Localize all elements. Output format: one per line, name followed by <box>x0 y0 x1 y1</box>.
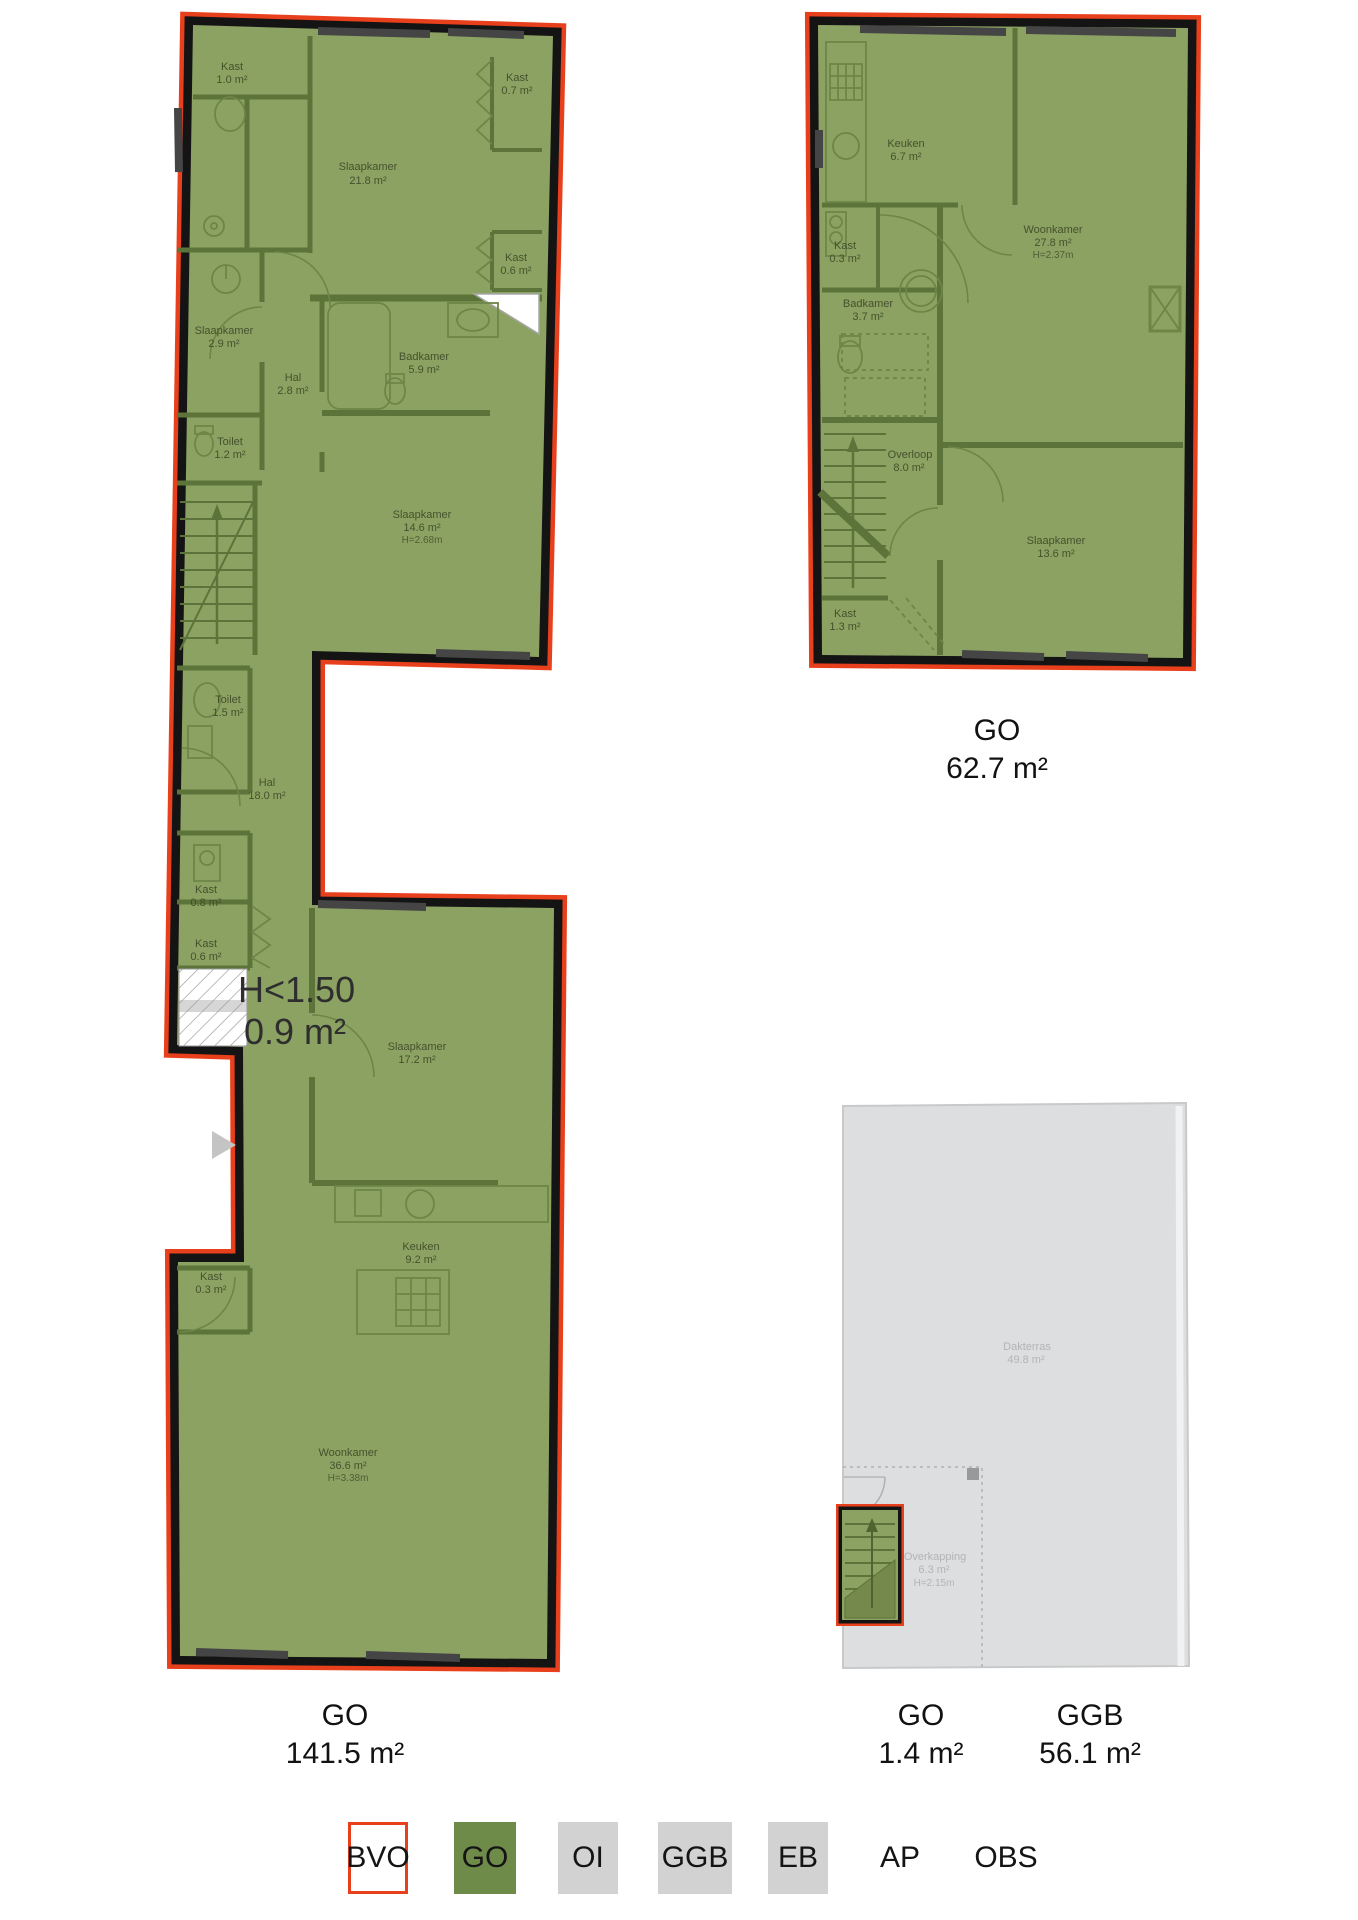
room-label: Badkamer <box>843 298 893 310</box>
room-label: Keuken <box>887 138 924 150</box>
room-area: 5.9 m² <box>408 364 440 376</box>
plan1-area-label: GO 141.5 m² <box>210 1697 480 1773</box>
room-area: 1.0 m² <box>216 74 248 86</box>
legend-item-oi: OI <box>558 1822 618 1894</box>
plan3-ggb-type: GGB <box>955 1697 1225 1735</box>
room-label: Slaapkamer <box>388 1041 447 1053</box>
terrace-edge-line <box>1179 1106 1181 1666</box>
legend-item-go: GO <box>454 1822 516 1894</box>
plan3-ggb-label: GGB 56.1 m² <box>955 1697 1225 1773</box>
room-area: 1.3 m² <box>829 621 861 633</box>
legend-item-eb: EB <box>768 1822 828 1894</box>
room-label: Kast <box>506 72 528 84</box>
room-area: 6.3 m² <box>918 1564 950 1576</box>
room-area: 0.6 m² <box>500 265 532 277</box>
room-height: H=3.38m <box>328 1473 369 1484</box>
room-area: 3.7 m² <box>852 311 884 323</box>
room-label: Dakterras <box>1003 1341 1051 1353</box>
room-label: Woonkamer <box>1023 224 1082 236</box>
room-label: Slaapkamer <box>195 325 254 337</box>
room-area: 36.6 m² <box>329 1460 367 1472</box>
room-area: 1.5 m² <box>212 707 244 719</box>
room-label: Kast <box>505 252 527 264</box>
plan3-roof-terrace: Dakterras 49.8 m² Overkapping 6.3 m² H=2… <box>842 1103 1189 1668</box>
room-label: Hal <box>259 777 276 789</box>
legend-item-obs: OBS <box>958 1822 1054 1894</box>
room-area: 0.3 m² <box>829 253 861 265</box>
room-area: 2.8 m² <box>277 385 309 397</box>
room-area: 49.8 m² <box>1007 1354 1045 1366</box>
room-label: Slaapkamer <box>1027 535 1086 547</box>
plan1-area-type: GO <box>210 1697 480 1735</box>
room-area: 6.7 m² <box>890 151 922 163</box>
room-area: 0.8 m² <box>190 897 222 909</box>
room-height: H=2.37m <box>1033 250 1074 261</box>
room-height: H=2.15m <box>914 1578 955 1589</box>
plan2-floorplan: Keuken 6.7 m² Woonkamer 27.8 m² H=2.37m … <box>818 25 1188 658</box>
floorplan-page: Kast 1.0 m² Slaapkamer 21.8 m² Kast 0.7 … <box>0 0 1358 1920</box>
plan1-area-value: 141.5 m² <box>210 1735 480 1773</box>
room-area: 0.7 m² <box>501 85 533 97</box>
plan2-go-area <box>818 25 1188 658</box>
room-area: 2.9 m² <box>208 338 240 350</box>
plan1-low-height-hatch <box>179 969 247 1046</box>
room-label: Slaapkamer <box>339 161 398 173</box>
room-area: 9.2 m² <box>405 1254 437 1266</box>
plan3-ggb-value: 56.1 m² <box>955 1735 1225 1773</box>
room-label: Overloop <box>888 449 933 461</box>
legend-item-bvo: BVO <box>348 1822 408 1894</box>
room-label: Kast <box>200 1271 222 1283</box>
room-label: Hal <box>285 372 302 384</box>
room-area: 1.2 m² <box>214 449 246 461</box>
room-label: Badkamer <box>399 351 449 363</box>
room-label: Kast <box>195 938 217 950</box>
plan2-area-value: 62.7 m² <box>862 750 1132 788</box>
legend-item-ap: AP <box>860 1822 940 1894</box>
legend-item-ggb: GGB <box>658 1822 732 1894</box>
room-area: 21.8 m² <box>349 175 387 187</box>
room-label: Woonkamer <box>318 1447 377 1459</box>
room-area: 13.6 m² <box>1037 548 1075 560</box>
room-height: H=2.68m <box>402 535 443 546</box>
room-area: 18.0 m² <box>248 790 286 802</box>
floorplan-drawing: Kast 1.0 m² Slaapkamer 21.8 m² Kast 0.7 … <box>0 0 1358 1920</box>
room-label: Toilet <box>215 694 241 706</box>
plan1-go-area <box>177 25 554 1659</box>
room-area: 17.2 m² <box>398 1054 436 1066</box>
room-label: Kast <box>221 61 243 73</box>
room-area: 27.8 m² <box>1034 237 1072 249</box>
room-label: Toilet <box>217 436 243 448</box>
room-area: 14.6 m² <box>403 522 441 534</box>
room-label: Slaapkamer <box>393 509 452 521</box>
overkapping-corner-marker <box>967 1468 979 1480</box>
room-label: Kast <box>834 608 856 620</box>
room-label: Kast <box>195 884 217 896</box>
room-label: Keuken <box>402 1241 439 1253</box>
room-label: Kast <box>834 240 856 252</box>
low-height-note-line1: H<1.50 <box>238 969 355 1010</box>
room-area: 0.3 m² <box>195 1284 227 1296</box>
plan3-go-stairbox <box>842 1510 898 1620</box>
plan1-floorplan: Kast 1.0 m² Slaapkamer 21.8 m² Kast 0.7 … <box>177 25 554 1659</box>
plan2-area-label: GO 62.7 m² <box>862 712 1132 788</box>
low-height-note-line2: 0.9 m² <box>244 1011 346 1052</box>
room-area: 0.6 m² <box>190 951 222 963</box>
plan2-area-type: GO <box>862 712 1132 750</box>
room-area: 8.0 m² <box>893 462 925 474</box>
room-label: Overkapping <box>904 1551 966 1563</box>
